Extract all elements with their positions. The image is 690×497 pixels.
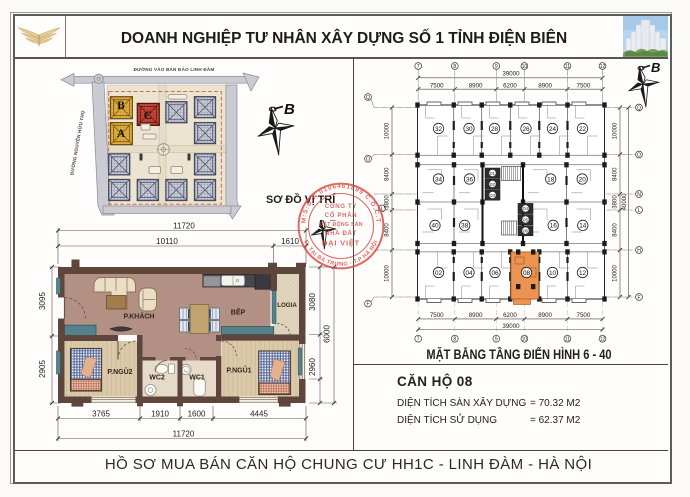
svg-text:2905: 2905 <box>38 360 47 378</box>
svg-text:34: 34 <box>435 176 443 183</box>
svg-text:8900: 8900 <box>538 312 552 319</box>
svg-text:H: H <box>637 248 641 254</box>
svg-text:40000: 40000 <box>622 193 628 210</box>
svg-text:P.NGỦ1: P.NGỦ1 <box>226 366 251 375</box>
svg-text:7: 7 <box>417 64 420 70</box>
svg-text:14: 14 <box>579 223 587 230</box>
svg-text:6200: 6200 <box>503 83 517 90</box>
svg-text:F: F <box>366 302 369 308</box>
svg-text:24: 24 <box>549 126 557 133</box>
svg-text:03: 03 <box>490 193 496 198</box>
svg-text:3095: 3095 <box>38 292 47 310</box>
svg-text:1600: 1600 <box>188 410 206 419</box>
svg-text:7500: 7500 <box>577 83 591 90</box>
svg-text:O: O <box>366 157 370 163</box>
svg-text:12: 12 <box>600 337 606 343</box>
svg-text:C: C <box>144 110 152 122</box>
svg-text:10: 10 <box>522 64 528 70</box>
svg-text:WC2: WC2 <box>149 375 165 382</box>
svg-text:ĐƯỜNG NGUYỄN HỮU THỌ: ĐƯỜNG NGUYỄN HỮU THỌ <box>67 109 85 175</box>
svg-text:6200: 6200 <box>503 312 517 319</box>
svg-text:26: 26 <box>522 126 530 133</box>
svg-text:11720: 11720 <box>173 222 195 231</box>
svg-text:Q: Q <box>366 95 370 101</box>
svg-text:WC1: WC1 <box>189 375 205 382</box>
svg-text:04: 04 <box>523 206 529 211</box>
svg-text:12: 12 <box>579 270 587 277</box>
svg-text:9: 9 <box>495 64 498 70</box>
svg-text:3080: 3080 <box>308 293 317 311</box>
svg-text:06: 06 <box>491 270 499 277</box>
svg-text:B: B <box>284 101 295 118</box>
svg-text:10110: 10110 <box>156 237 178 246</box>
svg-text:01: 01 <box>490 171 496 176</box>
svg-text:1910: 1910 <box>151 410 169 419</box>
svg-text:F: F <box>637 295 640 301</box>
svg-text:B: B <box>651 60 660 75</box>
svg-text:11: 11 <box>565 337 570 343</box>
svg-text:6000: 6000 <box>323 325 332 343</box>
svg-text:ĐẠI VIỆT: ĐẠI VIỆT <box>322 239 360 248</box>
svg-text:8900: 8900 <box>469 83 483 90</box>
svg-text:8400: 8400 <box>385 167 391 181</box>
svg-text:CỔ PHẦN: CỔ PHẦN <box>325 212 358 219</box>
svg-text:8: 8 <box>453 64 456 70</box>
svg-text:O: O <box>637 153 641 159</box>
svg-text:28: 28 <box>491 126 499 133</box>
svg-text:L: L <box>638 208 641 214</box>
svg-text:11720: 11720 <box>173 429 195 438</box>
svg-text:P.KHÁCH: P.KHÁCH <box>124 312 155 321</box>
svg-text:10000: 10000 <box>613 122 619 139</box>
svg-text:Q: Q <box>637 106 641 112</box>
svg-text:10: 10 <box>549 270 557 277</box>
svg-text:4445: 4445 <box>250 410 268 419</box>
svg-text:36: 36 <box>466 176 474 183</box>
svg-text:38: 38 <box>461 223 469 230</box>
svg-text:9: 9 <box>495 337 498 343</box>
svg-text:LOGIA: LOGIA <box>277 302 297 309</box>
svg-text:A: A <box>117 128 126 140</box>
svg-text:B: B <box>117 100 125 112</box>
svg-text:7500: 7500 <box>430 83 444 90</box>
svg-text:8: 8 <box>453 337 456 343</box>
svg-text:P.NGỦ2: P.NGỦ2 <box>107 367 132 376</box>
svg-text:8900: 8900 <box>469 312 483 319</box>
svg-text:11: 11 <box>565 64 570 70</box>
svg-text:08: 08 <box>523 270 531 277</box>
svg-text:NHÀ ĐẤT: NHÀ ĐẤT <box>325 230 357 237</box>
svg-text:8400: 8400 <box>613 223 619 237</box>
svg-text:22: 22 <box>579 126 587 133</box>
svg-text:40: 40 <box>431 223 439 230</box>
svg-text:7500: 7500 <box>430 312 444 319</box>
svg-text:12: 12 <box>600 64 606 70</box>
svg-text:10: 10 <box>522 337 528 343</box>
svg-text:30: 30 <box>465 126 473 133</box>
svg-text:39000: 39000 <box>502 71 520 78</box>
svg-text:18: 18 <box>547 176 555 183</box>
svg-text:16: 16 <box>550 223 558 230</box>
svg-text:02: 02 <box>435 270 443 277</box>
svg-text:32: 32 <box>435 126 443 133</box>
svg-text:8900: 8900 <box>538 83 552 90</box>
svg-text:10000: 10000 <box>613 264 619 281</box>
svg-text:05: 05 <box>523 217 529 222</box>
svg-text:39000: 39000 <box>502 323 520 330</box>
svg-text:3800: 3800 <box>613 195 619 209</box>
svg-text:02: 02 <box>490 182 496 187</box>
svg-text:06: 06 <box>523 228 529 233</box>
svg-text:ĐƯỜNG VÀO BÁN ĐẢO LINH ĐÀM: ĐƯỜNG VÀO BÁN ĐẢO LINH ĐÀM <box>134 65 215 72</box>
svg-text:7500: 7500 <box>577 312 591 319</box>
svg-text:CÔNG TY: CÔNG TY <box>325 202 357 210</box>
svg-text:N: N <box>637 192 641 198</box>
svg-text:8400: 8400 <box>613 167 619 181</box>
svg-text:7: 7 <box>417 337 420 343</box>
svg-text:20: 20 <box>579 176 587 183</box>
svg-text:10000: 10000 <box>385 122 391 139</box>
svg-text:2960: 2960 <box>308 358 317 376</box>
svg-text:04: 04 <box>465 270 473 277</box>
svg-text:ĐẤT ĐỘNG SẢN: ĐẤT ĐỘNG SẢN <box>319 220 363 228</box>
svg-text:3765: 3765 <box>92 410 110 419</box>
